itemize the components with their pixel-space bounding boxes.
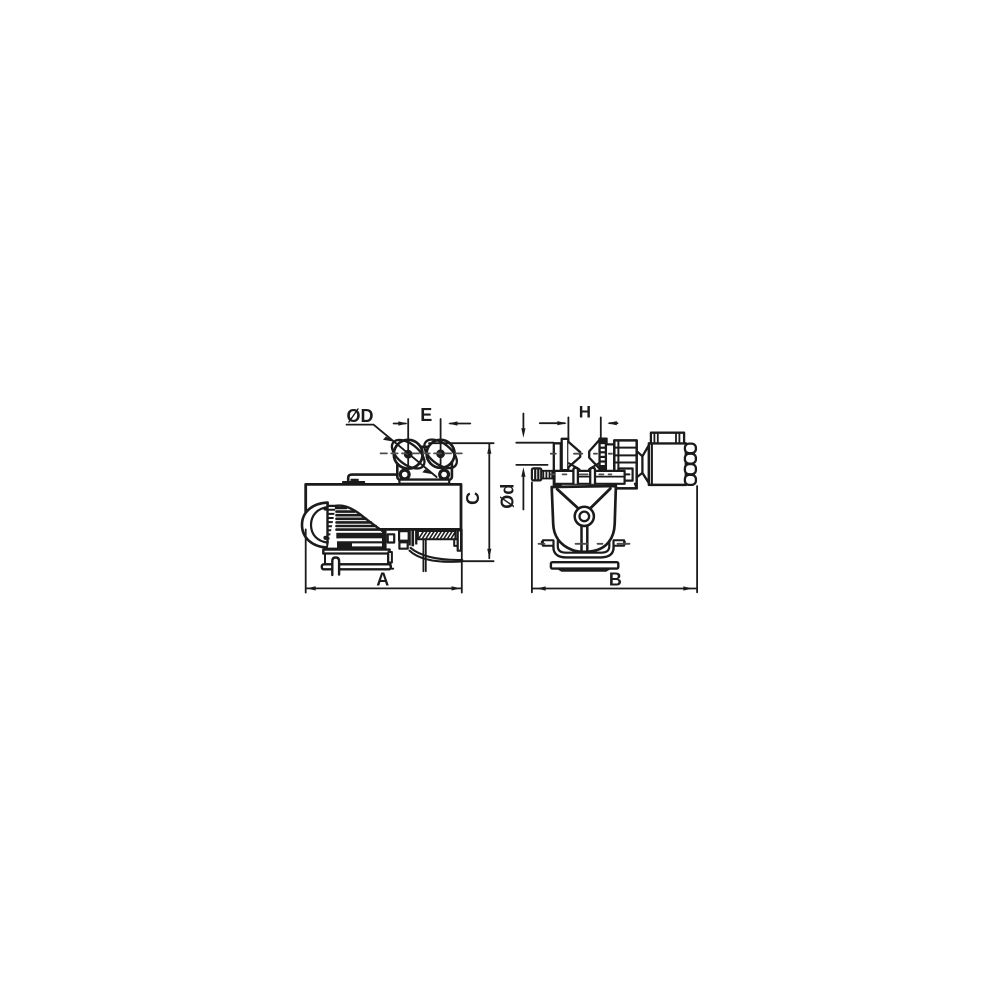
svg-text:E: E [420, 405, 432, 425]
svg-text:Ød: Ød [497, 484, 517, 509]
svg-text:A: A [376, 569, 389, 589]
svg-text:H: H [579, 403, 591, 422]
svg-text:ØD: ØD [347, 406, 374, 426]
svg-text:B: B [609, 570, 622, 590]
svg-text:C: C [463, 492, 483, 505]
